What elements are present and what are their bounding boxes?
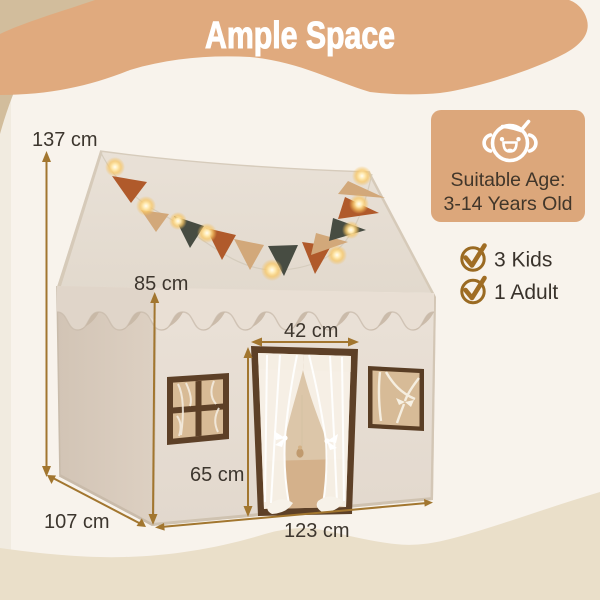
svg-text:107 cm: 107 cm [44, 511, 110, 533]
svg-text:65 cm: 65 cm [190, 464, 244, 486]
svg-text:137 cm: 137 cm [32, 129, 98, 151]
svg-text:Ample Space: Ample Space [205, 15, 395, 57]
svg-text:42 cm: 42 cm [284, 320, 338, 342]
svg-text:123 cm: 123 cm [284, 520, 350, 542]
svg-text:1 Adult: 1 Adult [494, 281, 558, 304]
svg-text:3-14 Years Old: 3-14 Years Old [443, 193, 572, 215]
svg-text:Suitable Age:: Suitable Age: [451, 169, 566, 191]
svg-text:85 cm: 85 cm [134, 273, 188, 295]
svg-text:3 Kids: 3 Kids [494, 249, 552, 272]
